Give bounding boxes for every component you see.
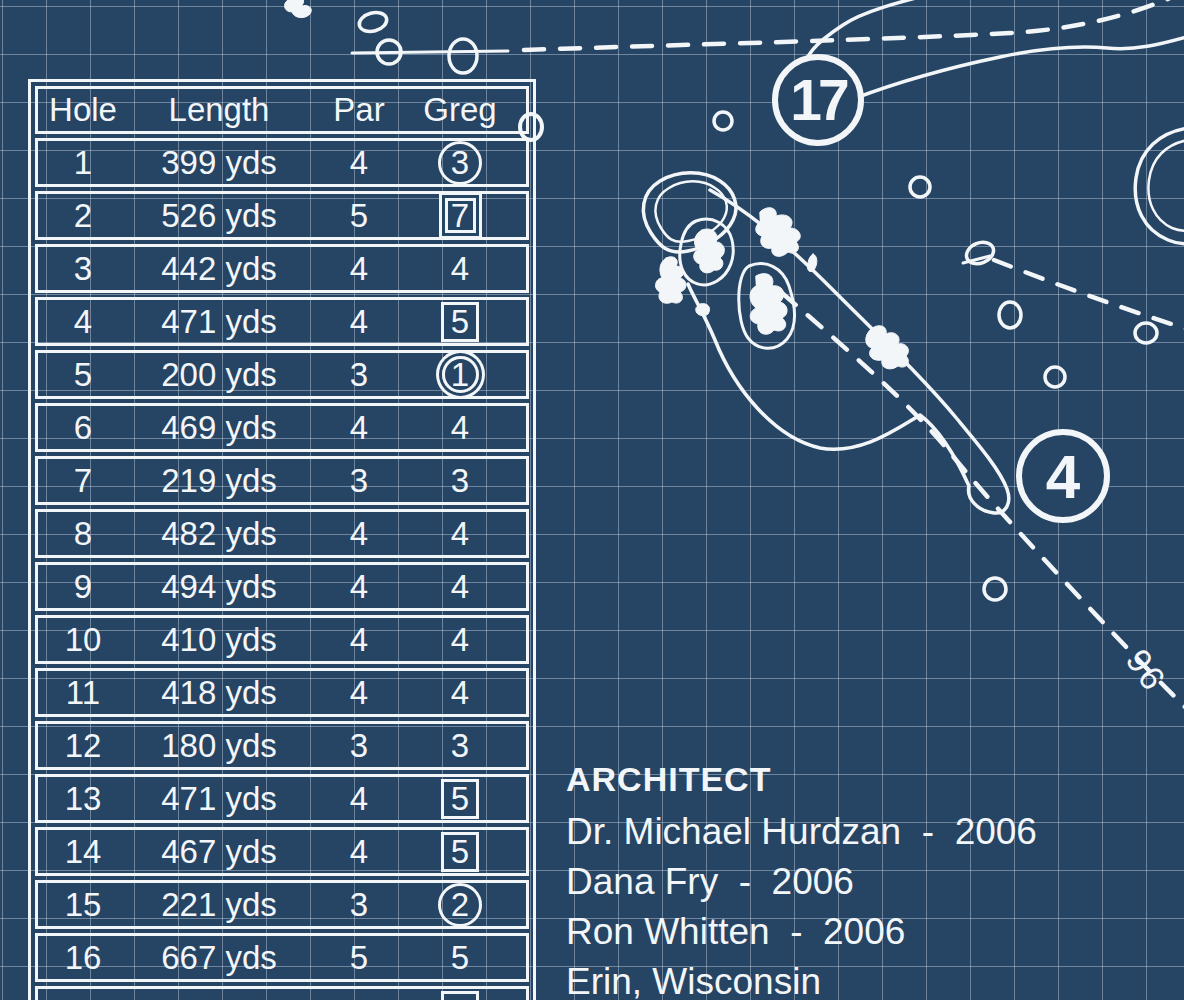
dashed-path-right <box>963 256 1184 330</box>
table-row <box>35 986 529 1000</box>
cell-par: 5 <box>310 939 408 977</box>
score-mark-double-square: 7 <box>445 198 476 233</box>
cell-score: 4 <box>408 409 512 447</box>
cell-par: 4 <box>310 409 408 447</box>
table-row: 2526 yds57 <box>35 191 529 240</box>
cell-score <box>408 991 512 1000</box>
cell-hole: 6 <box>38 409 128 447</box>
architect-line: Dr. Michael Hurdzan - 2006 <box>566 807 1037 857</box>
score-plain: 5 <box>451 939 469 977</box>
architect-title: ARCHITECT <box>566 760 1037 799</box>
cell-score: 7 <box>408 198 512 233</box>
cell-hole: 4 <box>38 303 128 341</box>
table-row: 5200 yds31 <box>35 350 529 399</box>
cell-length: 467 yds <box>128 833 310 871</box>
cell-score: 1 <box>408 356 512 393</box>
score-mark-circle: 2 <box>438 883 482 927</box>
table-row: 4471 yds45 <box>35 297 529 346</box>
cell-hole: 10 <box>38 621 128 659</box>
score-mark-square: 5 <box>441 302 479 342</box>
cell-length: 526 yds <box>128 197 310 235</box>
cell-length: 442 yds <box>128 250 310 288</box>
score-plain: 4 <box>451 515 469 553</box>
score-mark-double-circle: 1 <box>442 356 479 393</box>
scorecard-header: Hole Length Par Greg <box>35 86 529 134</box>
header-hole: Hole <box>38 91 128 129</box>
cell-par: 3 <box>310 356 408 394</box>
score-plain: 4 <box>451 250 469 288</box>
architect-line: Ron Whitten - 2006 <box>566 907 1037 957</box>
cell-par: 3 <box>310 462 408 500</box>
cell-length: 471 yds <box>128 303 310 341</box>
cell-par: 5 <box>310 197 408 235</box>
blueprint-canvas: 17 4 96 Hole Length Par Greg 1399 yds432… <box>0 0 1184 1000</box>
score-mark-circle: 3 <box>438 141 482 185</box>
cell-par: 4 <box>310 250 408 288</box>
table-row: 6469 yds44 <box>35 403 529 452</box>
cell-length: 180 yds <box>128 727 310 765</box>
cell-par: 4 <box>310 515 408 553</box>
cell-hole: 11 <box>38 674 128 712</box>
cell-par: 4 <box>310 833 408 871</box>
header-greg: Greg <box>408 91 512 129</box>
hole-4-number: 4 <box>1046 441 1080 512</box>
cell-score: 5 <box>408 939 512 977</box>
cell-score: 4 <box>408 515 512 553</box>
cell-par: 4 <box>310 568 408 606</box>
cell-length: 221 yds <box>128 886 310 924</box>
cell-par: 3 <box>310 886 408 924</box>
table-row: 14467 yds45 <box>35 827 529 876</box>
score-plain: 3 <box>451 462 469 500</box>
score-plain: 4 <box>451 621 469 659</box>
bunker <box>285 0 312 18</box>
cell-score: 5 <box>408 832 512 872</box>
table-row: 12180 yds33 <box>35 721 529 770</box>
cell-hole: 16 <box>38 939 128 977</box>
score-plain: 3 <box>451 727 469 765</box>
scorecard-table: Hole Length Par Greg 1399 yds432526 yds5… <box>28 79 536 1000</box>
hole4-green <box>643 173 736 252</box>
cell-score: 4 <box>408 674 512 712</box>
cell-par: 4 <box>310 621 408 659</box>
cell-length: 494 yds <box>128 568 310 606</box>
architect-lines: Dr. Michael Hurdzan - 2006Dana Fry - 200… <box>566 807 1037 1000</box>
cell-par: 4 <box>310 674 408 712</box>
architect-block: ARCHITECT Dr. Michael Hurdzan - 2006Dana… <box>566 760 1037 1000</box>
cell-hole: 3 <box>38 250 128 288</box>
header-length: Length <box>128 91 310 129</box>
table-row: 8482 yds44 <box>35 509 529 558</box>
cell-length: 469 yds <box>128 409 310 447</box>
cell-score: 4 <box>408 568 512 606</box>
hole4-centerline <box>782 293 1184 712</box>
score-mark-square <box>441 991 479 1000</box>
table-row: 16667 yds55 <box>35 933 529 982</box>
table-row: 11418 yds44 <box>35 668 529 717</box>
table-row: 13471 yds45 <box>35 774 529 823</box>
cell-hole: 13 <box>38 780 128 818</box>
cell-hole: 12 <box>38 727 128 765</box>
cell-par: 4 <box>310 144 408 182</box>
score-mark-square: 5 <box>441 779 479 819</box>
table-row: 3442 yds44 <box>35 244 529 293</box>
table-row: 9494 yds44 <box>35 562 529 611</box>
hole-4-marker: 4 <box>1016 429 1110 523</box>
header-par: Par <box>310 91 408 129</box>
tee-circles <box>714 112 1157 600</box>
table-row: 7219 yds33 <box>35 456 529 505</box>
cell-hole: 9 <box>38 568 128 606</box>
cell-score: 2 <box>408 883 512 927</box>
cell-length: 399 yds <box>128 144 310 182</box>
score-plain: 4 <box>451 674 469 712</box>
cell-par: 3 <box>310 727 408 765</box>
score-mark-square: 5 <box>441 832 479 872</box>
cell-hole: 15 <box>38 886 128 924</box>
tee-oval <box>357 10 389 35</box>
cell-length: 219 yds <box>128 462 310 500</box>
score-plain: 4 <box>451 409 469 447</box>
cell-length: 418 yds <box>128 674 310 712</box>
cell-score: 5 <box>408 779 512 819</box>
table-row: 10410 yds44 <box>35 615 529 664</box>
cell-score: 3 <box>408 141 512 185</box>
cell-hole: 14 <box>38 833 128 871</box>
cell-length: 482 yds <box>128 515 310 553</box>
cell-length: 471 yds <box>128 780 310 818</box>
cell-hole: 1 <box>38 144 128 182</box>
cell-score: 5 <box>408 302 512 342</box>
scorecard-rows: 1399 yds432526 yds573442 yds444471 yds45… <box>35 138 529 1000</box>
cell-score: 4 <box>408 250 512 288</box>
cell-length: 667 yds <box>128 939 310 977</box>
cell-length: 200 yds <box>128 356 310 394</box>
cell-hole: 5 <box>38 356 128 394</box>
cell-score: 3 <box>408 727 512 765</box>
architect-line: Dana Fry - 2006 <box>566 857 1037 907</box>
cell-hole: 8 <box>38 515 128 553</box>
cell-score: 4 <box>408 621 512 659</box>
cell-par: 4 <box>310 303 408 341</box>
cell-score: 3 <box>408 462 512 500</box>
tee-oval <box>449 39 477 73</box>
hole-17-marker: 17 <box>772 54 864 146</box>
architect-line: Erin, Wisconsin <box>566 957 1037 1000</box>
right-edge-green <box>1135 128 1184 244</box>
cell-par: 4 <box>310 780 408 818</box>
cell-hole: 7 <box>38 462 128 500</box>
cell-hole: 2 <box>38 197 128 235</box>
score-plain: 4 <box>451 568 469 606</box>
hole4-bunkers <box>656 208 909 369</box>
hole-17-number: 17 <box>790 67 845 133</box>
table-row: 1399 yds43 <box>35 138 529 187</box>
cell-length: 410 yds <box>128 621 310 659</box>
table-row: 15221 yds32 <box>35 880 529 929</box>
